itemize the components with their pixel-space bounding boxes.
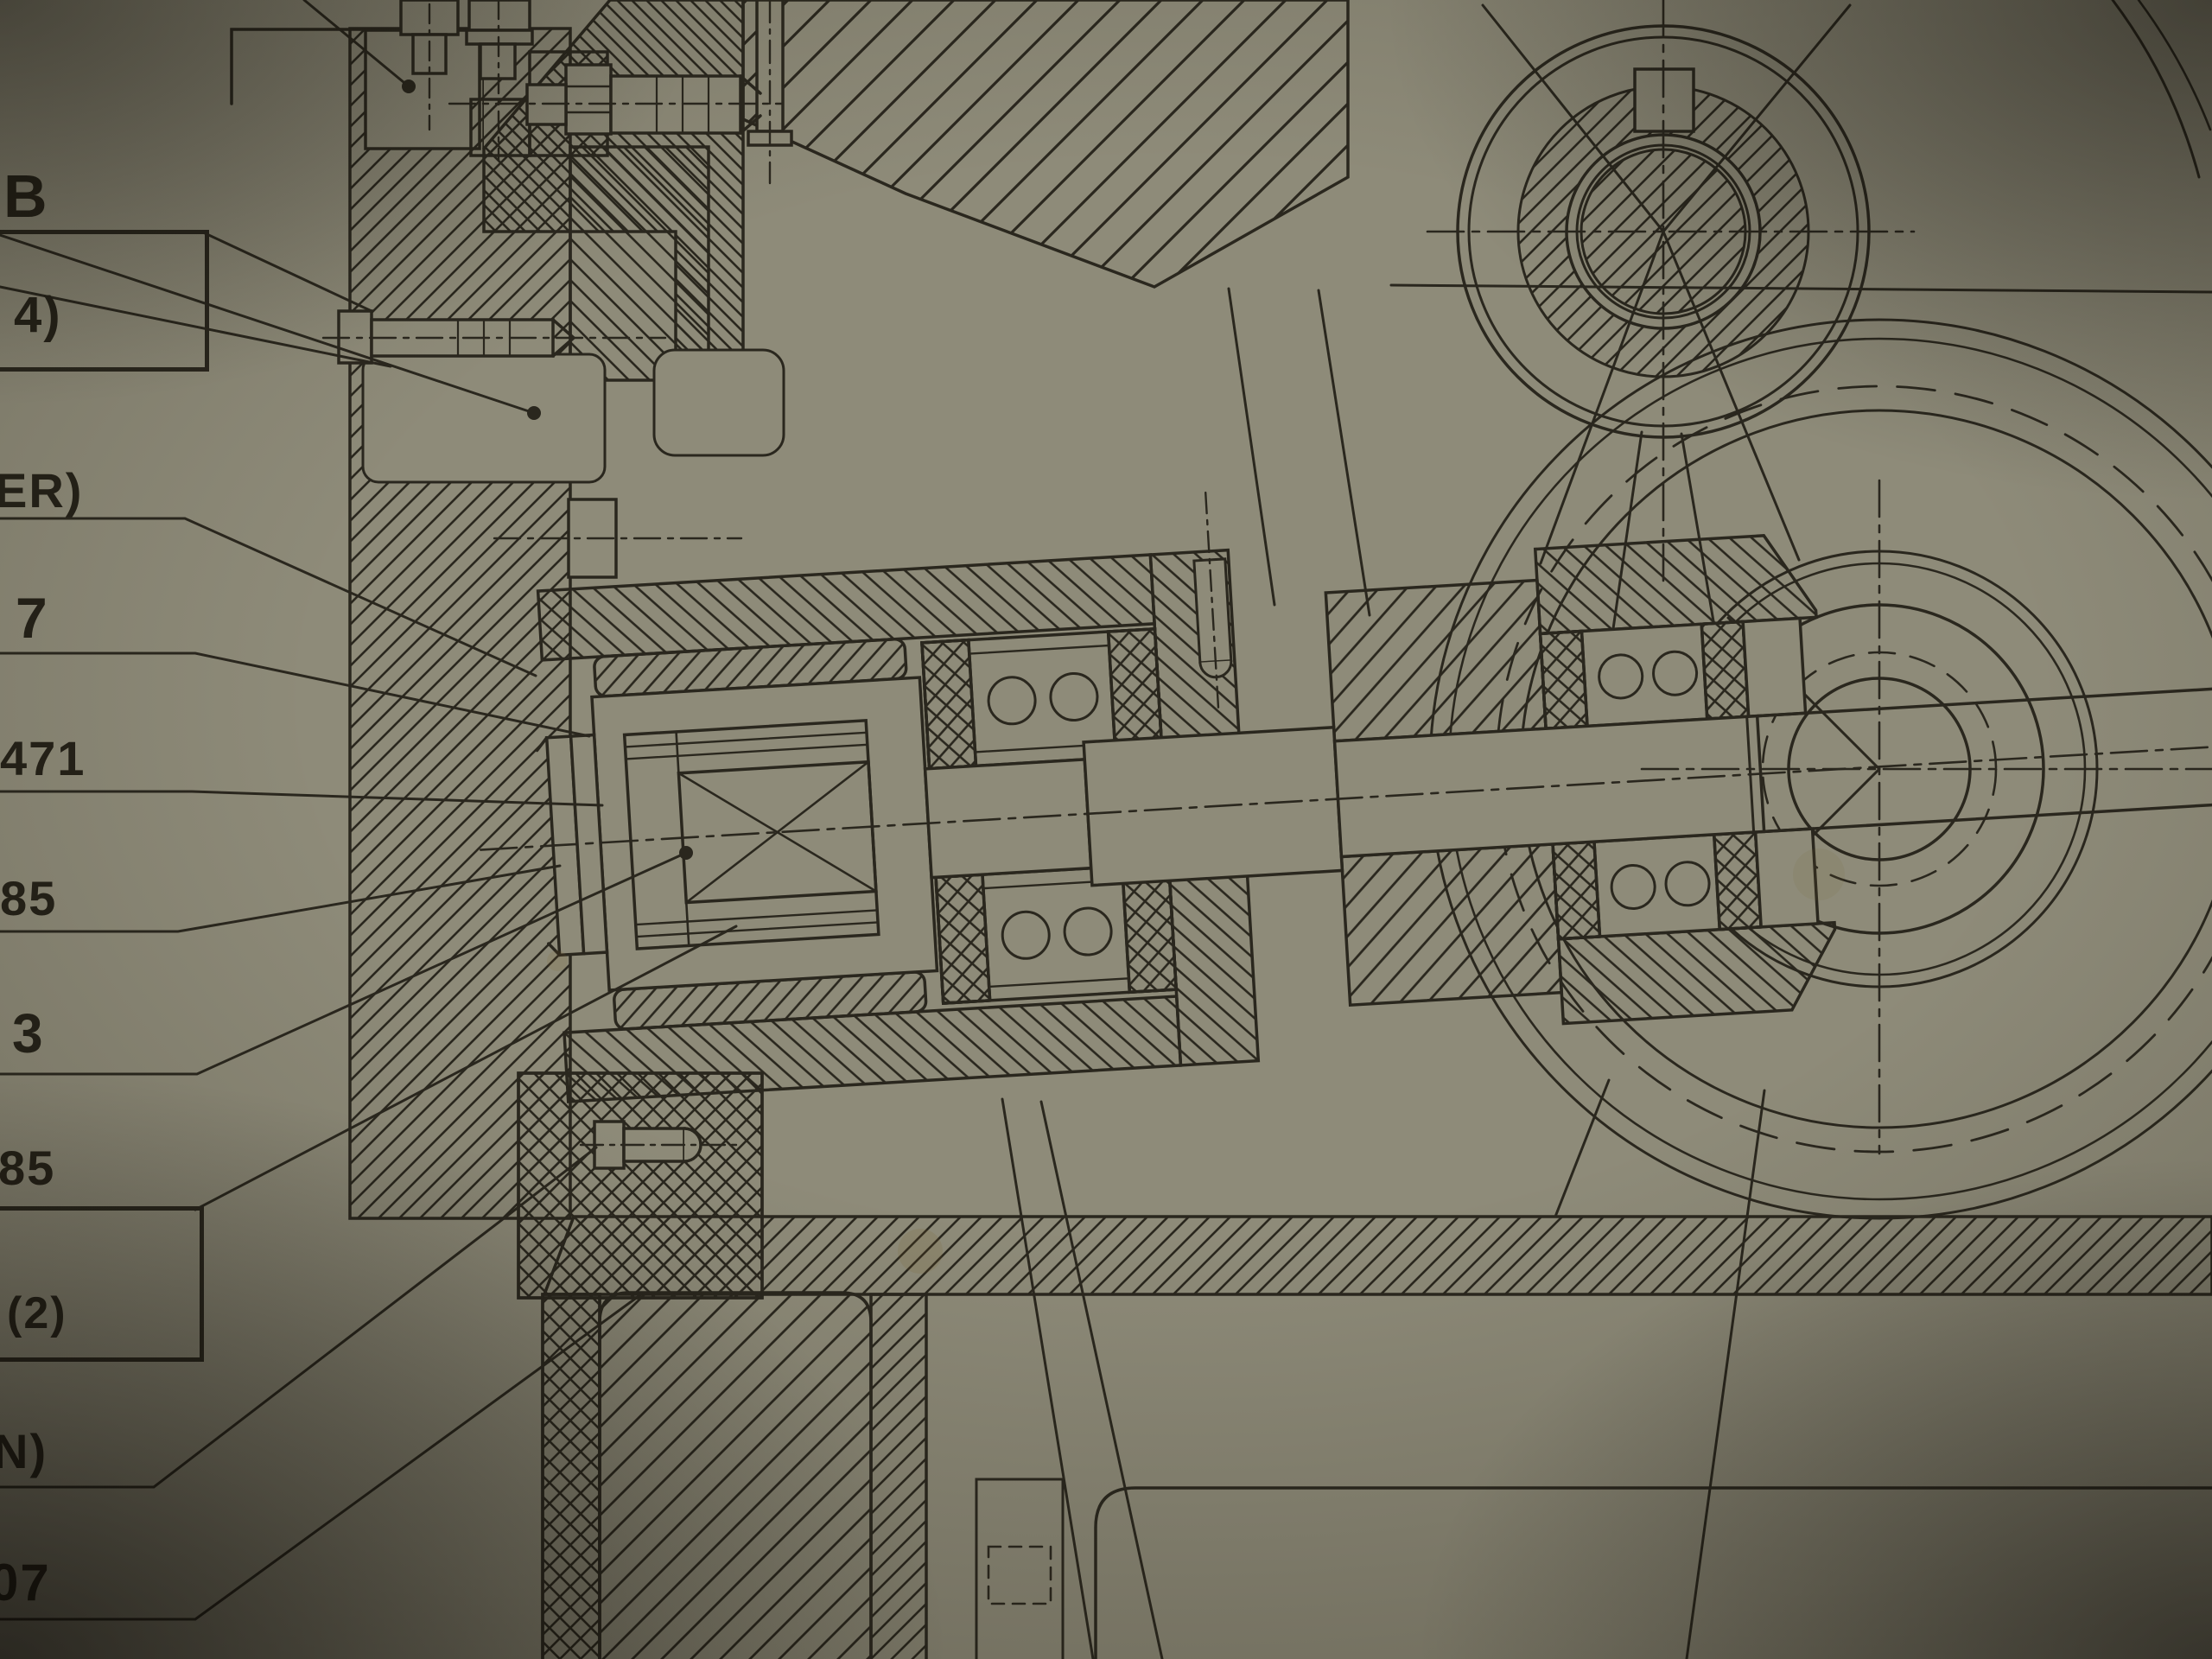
gear-a-end-view — [1458, 0, 2210, 563]
bottom-right-wall — [1096, 1488, 2212, 1659]
bearing-cap-upper — [1743, 619, 1805, 717]
callout-box-2 — [0, 1206, 204, 1362]
part-label-qty2: (2) — [7, 1291, 67, 1336]
part-label-b: B — [3, 166, 49, 226]
bottom-pocket-dashed — [988, 1547, 1051, 1604]
engineering-drawing — [0, 0, 2212, 1659]
leader-dot — [527, 406, 541, 420]
drawing-photo: B 4) ER) 7 471 85 3 85 (2) N) 07 — [0, 0, 2212, 1659]
part-label-85a: 85 — [0, 874, 57, 923]
mid-leader-lines — [1229, 289, 1370, 615]
bearing-right-lower — [1553, 832, 1761, 939]
housing-top-blocks — [484, 0, 2212, 380]
housing-bottom — [543, 1217, 2212, 1659]
part-label-qty4: 4) — [14, 290, 62, 340]
part-label-3: 3 — [12, 1006, 45, 1061]
flange-housing-block — [570, 147, 709, 380]
leader-dot — [402, 79, 416, 93]
bearing-left-lower — [936, 863, 1176, 1003]
leader-dot — [679, 846, 693, 860]
part-label-07: 07 — [0, 1557, 51, 1609]
cavity-box — [363, 354, 605, 482]
part-label-n: N) — [0, 1427, 48, 1476]
gear-hub-lower — [1341, 844, 1561, 1005]
long-leader-lines — [1002, 1080, 1764, 1659]
part-label-471: 471 — [0, 734, 86, 783]
bottom-block — [600, 1293, 871, 1659]
rounded-cutout — [654, 350, 784, 455]
bearing-right-upper — [1541, 621, 1749, 728]
gear-hub-upper — [1325, 580, 1546, 741]
part-label-85b: 85 — [0, 1144, 55, 1192]
part-label-7: 7 — [16, 589, 49, 646]
part-label-er: ER) — [0, 467, 83, 515]
